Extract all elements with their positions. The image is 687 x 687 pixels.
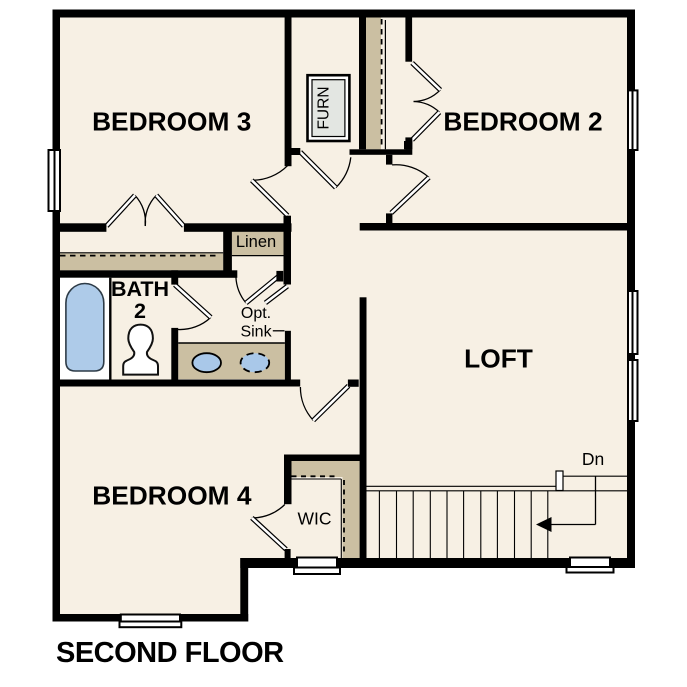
svg-text:WIC: WIC [297,509,331,529]
svg-text:BEDROOM 4: BEDROOM 4 [92,480,252,510]
svg-text:BEDROOM 3: BEDROOM 3 [92,106,251,136]
svg-text:Dn: Dn [582,449,604,469]
svg-text:Linen: Linen [236,233,276,251]
svg-text:FURN: FURN [316,86,333,129]
svg-text:2: 2 [134,299,146,323]
svg-text:Opt.: Opt. [241,305,271,322]
svg-text:LOFT: LOFT [464,344,533,374]
svg-text:BATH: BATH [111,277,169,301]
svg-text:Sink: Sink [240,324,272,341]
svg-text:SECOND FLOOR: SECOND FLOOR [56,637,284,669]
svg-text:BEDROOM 2: BEDROOM 2 [443,106,602,136]
